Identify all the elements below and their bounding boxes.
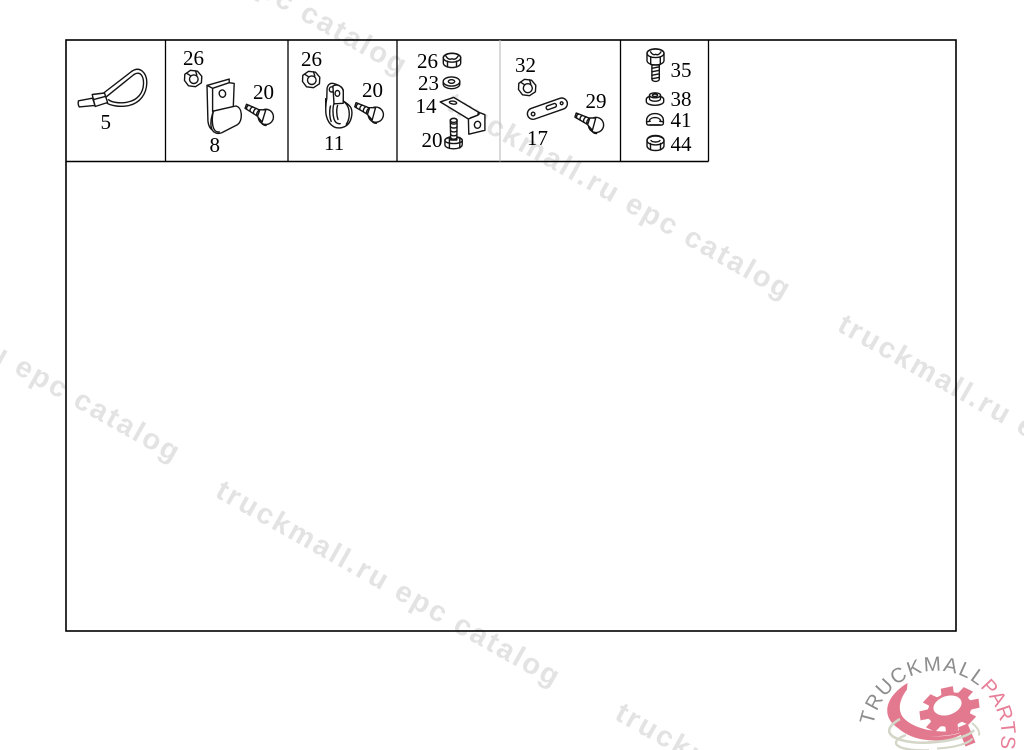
svg-text:32: 32 — [515, 53, 536, 77]
svg-text:26: 26 — [183, 46, 204, 70]
svg-text:35: 35 — [671, 58, 692, 82]
svg-text:26: 26 — [301, 47, 322, 71]
svg-text:14: 14 — [416, 94, 438, 118]
svg-text:44: 44 — [671, 132, 693, 156]
svg-text:26: 26 — [417, 49, 438, 73]
svg-text:5: 5 — [101, 110, 112, 134]
svg-text:23: 23 — [418, 71, 439, 95]
svg-text:20: 20 — [422, 128, 443, 152]
svg-text:11: 11 — [324, 131, 344, 155]
svg-text:8: 8 — [210, 133, 221, 157]
svg-text:29: 29 — [586, 89, 607, 113]
svg-text:20: 20 — [253, 80, 274, 104]
svg-text:20: 20 — [362, 78, 383, 102]
svg-text:41: 41 — [671, 108, 692, 132]
svg-text:truckmall.ru epc catalog: truckmall.ru epc catalog — [832, 308, 1024, 528]
svg-text:truckmall.ru epc catalog: truckmall.ru epc catalog — [57, 0, 414, 82]
svg-text:truckmall.ru epc catalog: truckmall.ru epc catalog — [210, 474, 567, 694]
svg-text:truckmall.ru epc catalog: truckmall.ru epc catalog — [441, 87, 798, 307]
svg-text:truckmall.ru epc catalog: truckmall.ru epc catalog — [0, 250, 187, 470]
svg-text:17: 17 — [527, 126, 548, 150]
